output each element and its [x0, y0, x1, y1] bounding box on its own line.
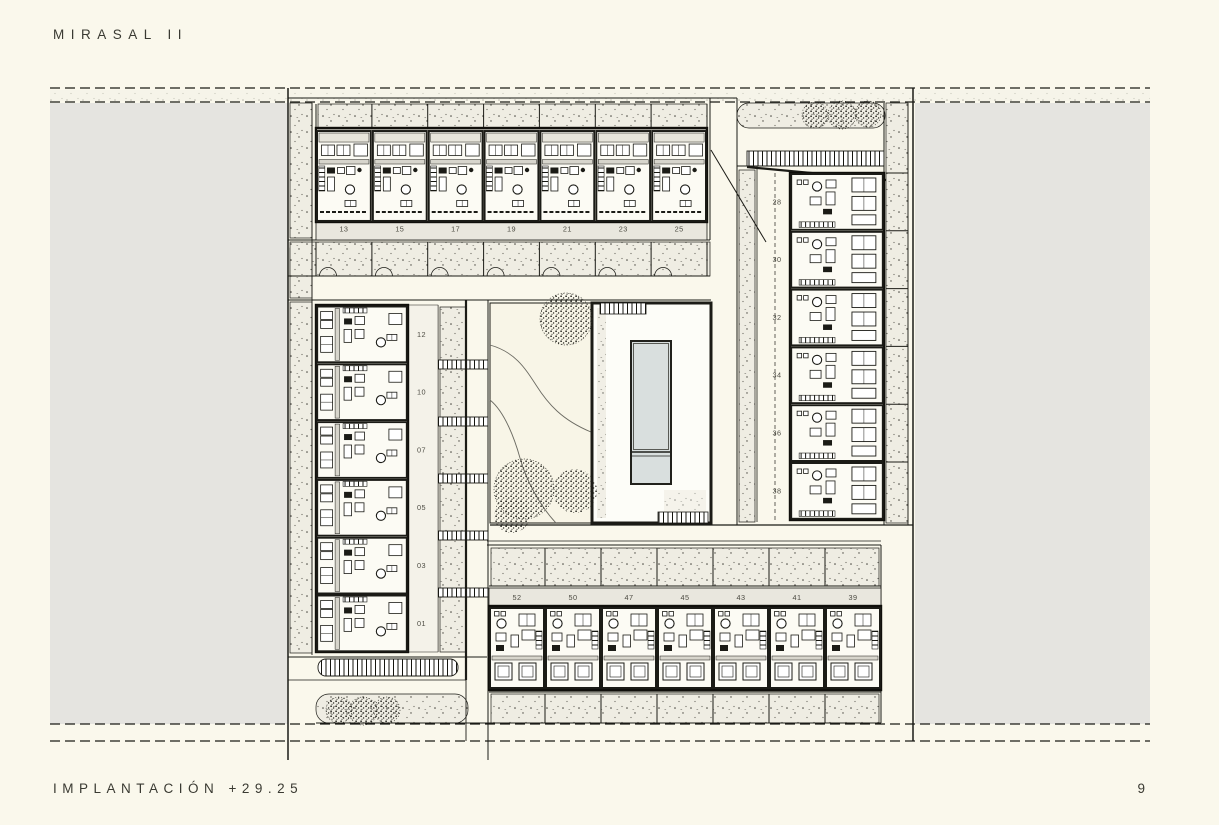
tree-icon — [494, 497, 530, 533]
unit-cell — [317, 595, 407, 651]
unit-number: 07 — [417, 445, 426, 454]
unit-number: 39 — [849, 593, 858, 602]
unit-cell — [373, 131, 427, 221]
unit-number: 15 — [395, 225, 404, 234]
tree-icon — [855, 101, 881, 127]
pool — [631, 341, 671, 484]
unit-number: 43 — [737, 593, 746, 602]
tree-icon — [326, 697, 352, 723]
page-number: 9 — [1137, 781, 1147, 796]
context-mask-right — [915, 103, 1150, 724]
unit-cell — [602, 608, 656, 688]
unit-number: 50 — [569, 593, 578, 602]
unit-cell — [652, 131, 706, 221]
unit-number: 32 — [773, 313, 782, 322]
tree-icon — [374, 697, 400, 723]
unit-cell — [791, 405, 883, 461]
page-title: MIRASAL II — [53, 27, 188, 42]
unit-number: 45 — [681, 593, 690, 602]
unit-cell — [596, 131, 650, 221]
unit-number: 01 — [417, 619, 426, 628]
unit-number: 05 — [417, 503, 426, 512]
tree-icon — [802, 102, 828, 128]
unit-number: 13 — [339, 225, 348, 234]
unit-number: 38 — [773, 486, 782, 495]
top-texture-band — [50, 90, 1150, 101]
unit-cell — [791, 463, 883, 519]
site-plan: 1315171921232512100705030128303234363852… — [0, 0, 1219, 825]
unit-number: 10 — [417, 388, 426, 397]
unit-number: 19 — [507, 225, 516, 234]
unit-cell — [317, 364, 407, 420]
unit-cell — [490, 608, 544, 688]
unit-number: 17 — [451, 225, 460, 234]
unit-number: 23 — [619, 225, 628, 234]
tree-icon — [553, 469, 597, 513]
unit-cell — [546, 608, 600, 688]
unit-number: 03 — [417, 561, 426, 570]
unit-cell — [317, 131, 371, 221]
tree-icon — [349, 697, 377, 725]
unit-cell — [317, 422, 407, 478]
sheet: 1315171921232512100705030128303234363852… — [0, 0, 1219, 825]
footer-plan-label: IMPLANTACIÓN +29.25 — [53, 781, 303, 796]
unit-number: 25 — [675, 225, 684, 234]
unit-cell — [317, 306, 407, 362]
unit-cell — [826, 608, 880, 688]
unit-cell — [791, 174, 883, 230]
unit-cell — [658, 608, 712, 688]
unit-number: 34 — [773, 371, 782, 380]
pool-entry-steps-bottom — [658, 512, 708, 523]
unit-cell — [317, 538, 407, 594]
unit-number: 28 — [773, 197, 782, 206]
unit-cell — [791, 232, 883, 288]
pool-entry-steps-top — [600, 303, 646, 314]
unit-cell — [317, 480, 407, 536]
tree-icon — [540, 293, 592, 345]
unit-number: 12 — [417, 330, 426, 339]
context-mask-left — [50, 103, 288, 724]
unit-cell — [770, 608, 824, 688]
unit-cell — [791, 347, 883, 403]
unit-number: 21 — [563, 225, 572, 234]
unit-cell — [791, 290, 883, 346]
unit-cell — [485, 131, 539, 221]
unit-cell — [429, 131, 483, 221]
unit-number: 30 — [773, 255, 782, 264]
unit-cell — [540, 131, 594, 221]
unit-number: 47 — [625, 593, 634, 602]
unit-cell — [714, 608, 768, 688]
unit-number: 41 — [793, 593, 802, 602]
unit-number: 36 — [773, 429, 782, 438]
unit-number: 52 — [513, 593, 522, 602]
tree-icon — [828, 101, 856, 129]
